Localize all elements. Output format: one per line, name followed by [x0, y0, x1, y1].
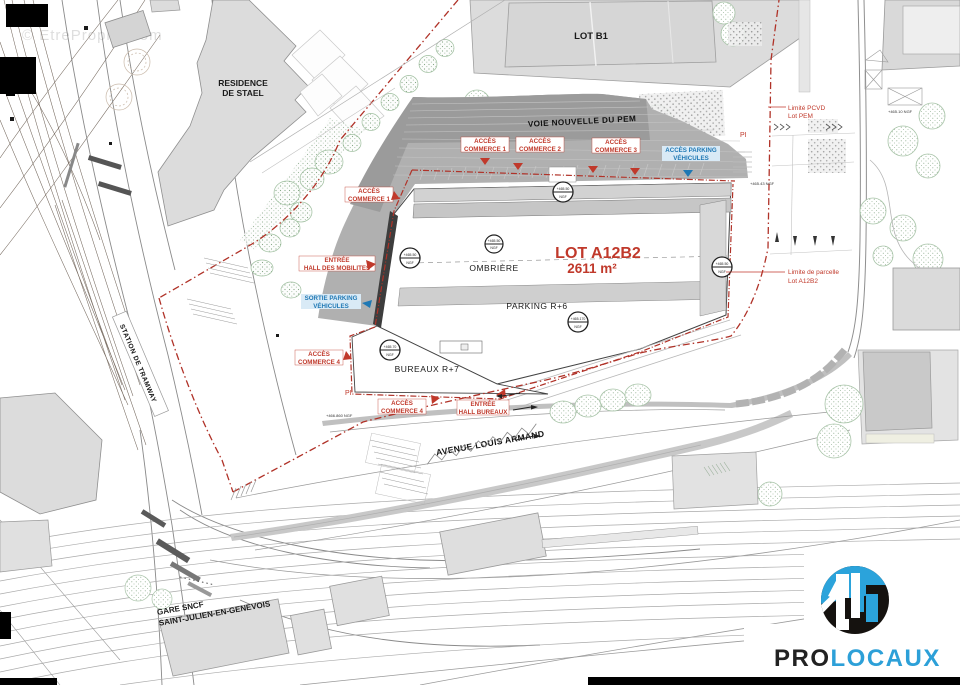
svg-text:ACCÈS: ACCÈS	[474, 137, 496, 145]
svg-text:COMMERCE 1: COMMERCE 1	[464, 146, 506, 153]
svg-text:+465.70: +465.70	[384, 345, 397, 349]
svg-text:NGF: NGF	[490, 246, 497, 250]
svg-text:COMMERCE 4: COMMERCE 4	[381, 408, 423, 415]
svg-text:+465.10 NGF: +465.10 NGF	[888, 109, 913, 114]
svg-text:NGF: NGF	[574, 325, 581, 329]
svg-text:ACCÈS: ACCÈS	[391, 399, 413, 407]
svg-text:ENTRÉE: ENTRÉE	[470, 400, 495, 408]
svg-text:+465.43 NGF: +465.43 NGF	[750, 181, 775, 186]
svg-text:+465.50: +465.50	[716, 262, 729, 266]
svg-text:ACCÈS PARKING: ACCÈS PARKING	[665, 146, 717, 154]
svg-text:PARKING R+6: PARKING R+6	[506, 301, 567, 311]
svg-text:ACCÈS: ACCÈS	[529, 137, 551, 145]
svg-text:2611 m²: 2611 m²	[567, 261, 617, 276]
svg-text:NGF: NGF	[718, 270, 725, 274]
svg-text:ACCÈS: ACCÈS	[605, 138, 627, 146]
svg-text:+465.50: +465.50	[488, 239, 501, 243]
svg-text:COMMERCE 2: COMMERCE 2	[519, 146, 561, 153]
svg-text:LOT B1: LOT B1	[574, 31, 608, 42]
svg-text:PI: PI	[740, 132, 747, 139]
svg-text:NGF: NGF	[559, 195, 566, 199]
svg-text:HALL DES MOBILITES: HALL DES MOBILITES	[304, 265, 370, 272]
svg-text:NGF: NGF	[386, 353, 393, 357]
svg-text:VÉHICULES: VÉHICULES	[673, 154, 708, 162]
svg-text:Lot PEM: Lot PEM	[788, 113, 813, 120]
svg-text:ENTRÉE: ENTRÉE	[324, 256, 349, 264]
svg-text:VÉHICULES: VÉHICULES	[313, 302, 348, 310]
svg-text:Limité PCVD: Limité PCVD	[788, 105, 826, 112]
svg-text:BUREAUX R+7: BUREAUX R+7	[395, 364, 460, 374]
svg-text:HALL BUREAUX: HALL BUREAUX	[459, 409, 509, 416]
svg-text:COMMERCE 3: COMMERCE 3	[595, 147, 637, 154]
svg-text:ACCÈS: ACCÈS	[308, 350, 330, 358]
svg-text:DE STAEL: DE STAEL	[222, 88, 263, 98]
svg-text:+465.50: +465.50	[557, 187, 570, 191]
svg-text:ACCÈS: ACCÈS	[358, 187, 380, 195]
svg-text:Lot A12B2: Lot A12B2	[788, 278, 818, 285]
svg-text:COMMERCE 1: COMMERCE 1	[348, 196, 390, 203]
svg-text:Limite de parcelle: Limite de parcelle	[788, 269, 839, 276]
svg-text:+466.860 NGF: +466.860 NGF	[326, 413, 353, 418]
svg-text:RESIDENCE: RESIDENCE	[218, 78, 268, 88]
svg-text:COMMERCE 4: COMMERCE 4	[298, 359, 340, 366]
svg-text:PI: PI	[345, 390, 352, 397]
svg-text:SORTIE PARKING: SORTIE PARKING	[305, 295, 358, 302]
svg-text:PROLOCAUX: PROLOCAUX	[774, 645, 941, 672]
svg-text:LOT A12B2: LOT A12B2	[555, 245, 641, 262]
svg-text:+465.170: +465.170	[571, 317, 586, 321]
svg-text:NGF: NGF	[406, 261, 413, 265]
svg-text:+465.50: +465.50	[404, 253, 417, 257]
svg-text:OMBRIÈRE: OMBRIÈRE	[469, 263, 518, 273]
